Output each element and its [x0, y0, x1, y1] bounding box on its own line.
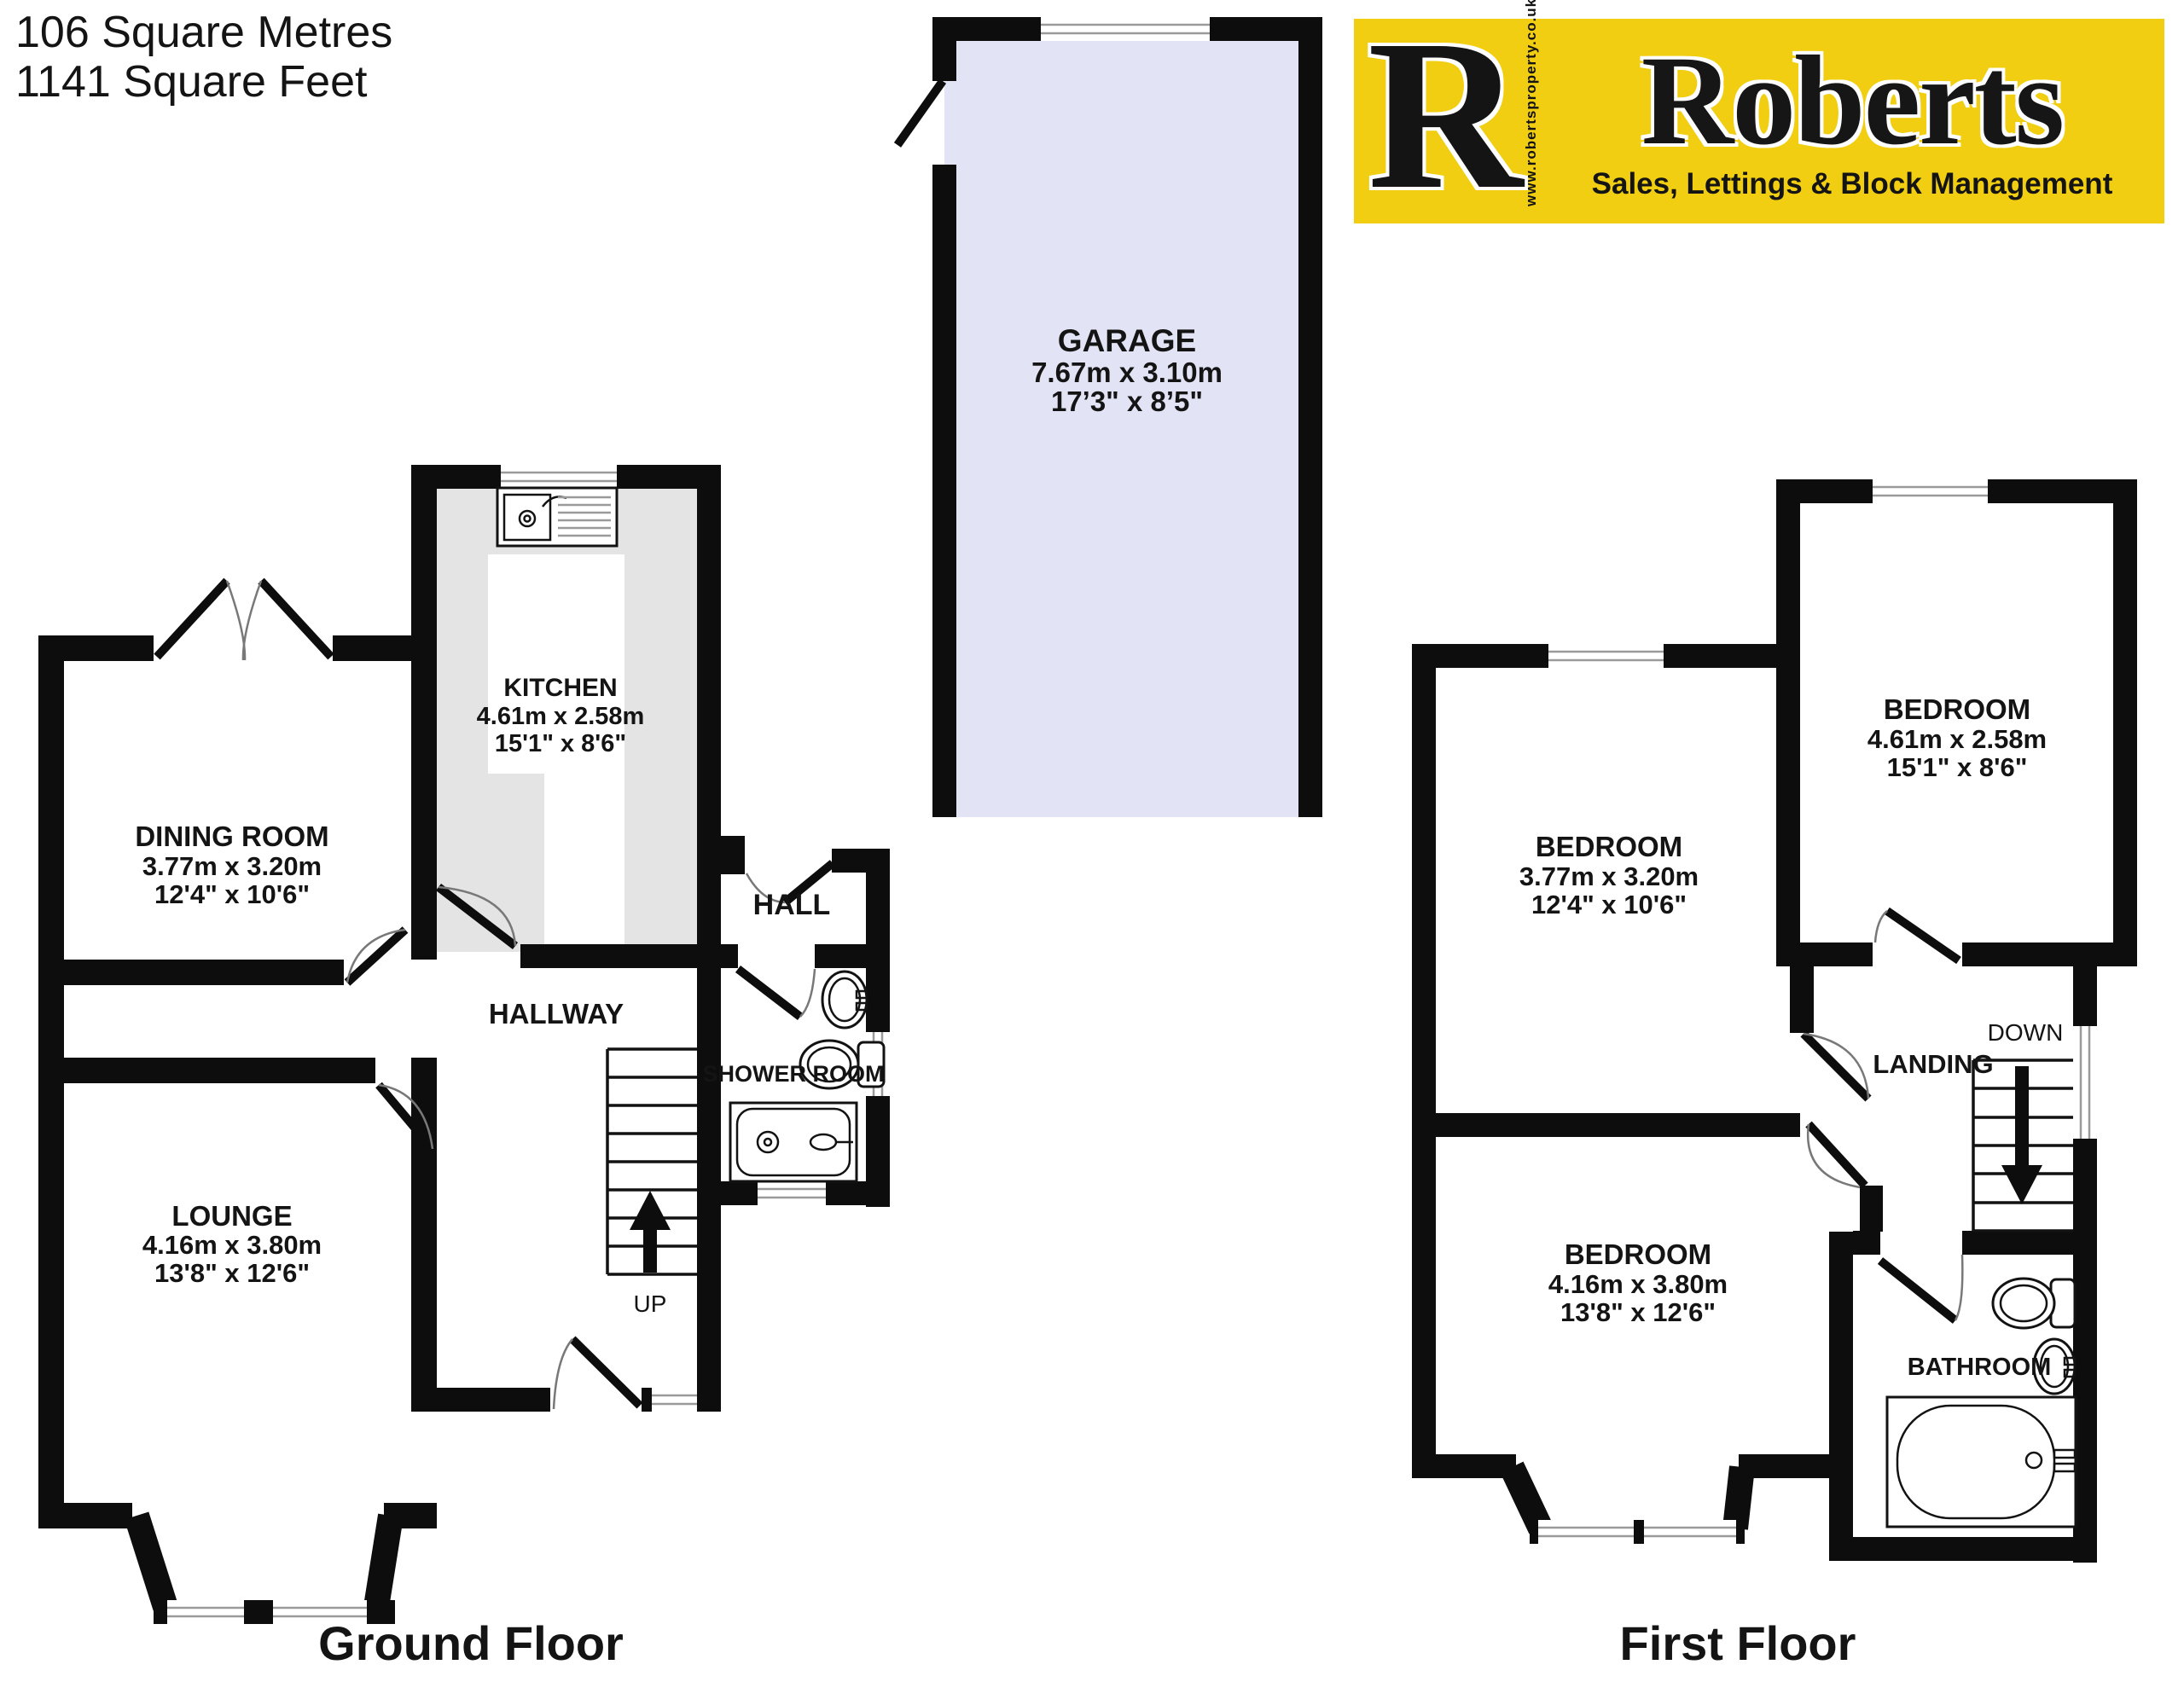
bedroom1-label: BEDROOM: [1884, 693, 2030, 725]
first-floor-plan: BEDROOM 4.61m x 2.58m 15'1" x 8'6" BEDRO…: [1412, 479, 2137, 1670]
bedroom2-door: [1804, 1034, 1868, 1099]
ground-floor-plan: DINING ROOM 3.77m x 3.20m 12'4" x 10'6" …: [38, 465, 890, 1670]
front-door: [554, 1339, 640, 1409]
garage-window: [1041, 17, 1210, 41]
lounge-dim-imperial: 13'8" x 12'6": [154, 1258, 310, 1288]
kitchen-sink-unit: [497, 488, 617, 546]
bedroom3-door: [1808, 1124, 1865, 1187]
logo-tagline: Sales, Lettings & Block Management: [1592, 167, 2113, 201]
ground-floor-title: Ground Floor: [318, 1616, 624, 1670]
lounge-label: LOUNGE: [171, 1200, 292, 1232]
front-door-sidelight-window: [652, 1388, 697, 1412]
bedroom1-window: [1873, 479, 1988, 503]
garage-floor: [944, 29, 1310, 817]
wash-basin: [822, 971, 867, 1028]
hallway-label: HALLWAY: [489, 998, 624, 1029]
dining-patio-doors: [157, 581, 331, 660]
logo-main-block: Roberts Sales, Lettings & Block Manageme…: [1540, 19, 2164, 223]
dining-room-dim-metric: 3.77m x 3.20m: [142, 851, 322, 881]
floorplan-page: 106 Square Metres 1141 Square Feet R www…: [0, 0, 2184, 1682]
shower-tray: [730, 1103, 857, 1181]
kitchen-window: [501, 465, 617, 489]
bathtub: [1887, 1397, 2076, 1527]
landing-label: LANDING: [1873, 1049, 1993, 1079]
toilet: [1993, 1279, 2075, 1328]
garage-dim-metric: 7.67m x 3.10m: [1031, 357, 1223, 388]
up-arrow-icon: [630, 1191, 671, 1273]
bedroom2-label: BEDROOM: [1536, 831, 1682, 862]
lounge-dim-metric: 4.16m x 3.80m: [142, 1230, 322, 1260]
total-area-metric: 106 Square Metres: [15, 7, 392, 58]
bathroom-door: [1880, 1255, 1962, 1320]
first-floor-title: First Floor: [1620, 1616, 1856, 1670]
kitchen-dim-imperial: 15'1" x 8'6": [495, 730, 626, 757]
garage-label: GARAGE: [1058, 323, 1196, 358]
roberts-logo: R www.robertsproperty.co.uk Roberts Sale…: [1354, 19, 2164, 223]
garage-side-door: [897, 81, 943, 145]
kitchen-counter-area-2: [544, 772, 624, 944]
garage-room: GARAGE 7.67m x 3.10m 17’3" x 8’5": [897, 17, 1322, 817]
bedroom3-dim-imperial: 13'8" x 12'6": [1560, 1297, 1716, 1327]
first-floor-stairs: [1973, 1060, 2073, 1231]
logo-letter-r: R: [1354, 19, 1523, 223]
bedroom1-door: [1875, 911, 1959, 960]
bathroom-label: BATHROOM: [1908, 1354, 2052, 1381]
ground-stairs: [607, 1049, 697, 1274]
stairs-up-label: UP: [634, 1290, 667, 1317]
bedroom2-dim-metric: 3.77m x 3.20m: [1519, 861, 1699, 891]
logo-brand-name: Roberts: [1641, 41, 2063, 160]
kitchen-dim-metric: 4.61m x 2.58m: [477, 703, 645, 730]
bedroom3-dim-metric: 4.16m x 3.80m: [1548, 1269, 1728, 1299]
bedroom3-label: BEDROOM: [1565, 1238, 1711, 1270]
total-area-imperial: 1141 Square Feet: [15, 56, 367, 107]
logo-website-text: www.robertsproperty.co.uk: [1523, 36, 1540, 206]
stairs-down-label: DOWN: [1988, 1019, 2064, 1046]
bedroom1-dim-imperial: 15'1" x 8'6": [1887, 752, 2028, 782]
shower-room-bottom-window: [758, 1181, 826, 1205]
garage-dim-imperial: 17’3" x 8’5": [1051, 386, 1203, 417]
shower-room-label: SHOWER ROOM: [703, 1061, 885, 1087]
landing-window: [2073, 1026, 2097, 1139]
dining-room-dim-imperial: 12'4" x 10'6": [154, 879, 310, 909]
bathroom-fixtures: [1887, 1279, 2076, 1527]
bedroom2-window: [1548, 644, 1664, 668]
dining-door: [347, 930, 405, 983]
hall-label: HALL: [753, 889, 831, 921]
dining-room-label: DINING ROOM: [135, 821, 328, 852]
kitchen-label: KITCHEN: [503, 674, 617, 702]
floorplan-drawing: GARAGE 7.67m x 3.10m 17’3" x 8’5": [0, 0, 2184, 1682]
shower-room-door: [738, 969, 815, 1017]
bedroom2-dim-imperial: 12'4" x 10'6": [1531, 890, 1687, 919]
bedroom1-dim-metric: 4.61m x 2.58m: [1867, 724, 2047, 754]
